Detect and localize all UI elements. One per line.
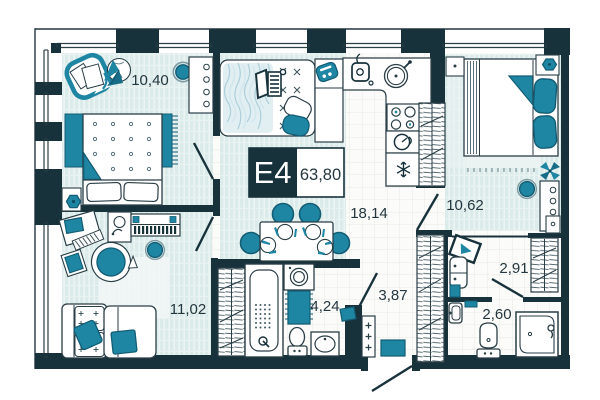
svg-text:2,91: 2,91 (499, 260, 528, 277)
svg-text:11,02: 11,02 (170, 301, 206, 318)
svg-text:18,14: 18,14 (350, 205, 388, 222)
svg-text:E4: E4 (254, 155, 292, 190)
svg-text:4,24: 4,24 (310, 298, 339, 315)
svg-text:3,87: 3,87 (378, 287, 407, 304)
svg-text:2,60: 2,60 (482, 306, 511, 323)
svg-text:10,40: 10,40 (131, 72, 169, 89)
svg-text:63,80: 63,80 (300, 166, 341, 184)
svg-text:10,62: 10,62 (446, 197, 484, 214)
